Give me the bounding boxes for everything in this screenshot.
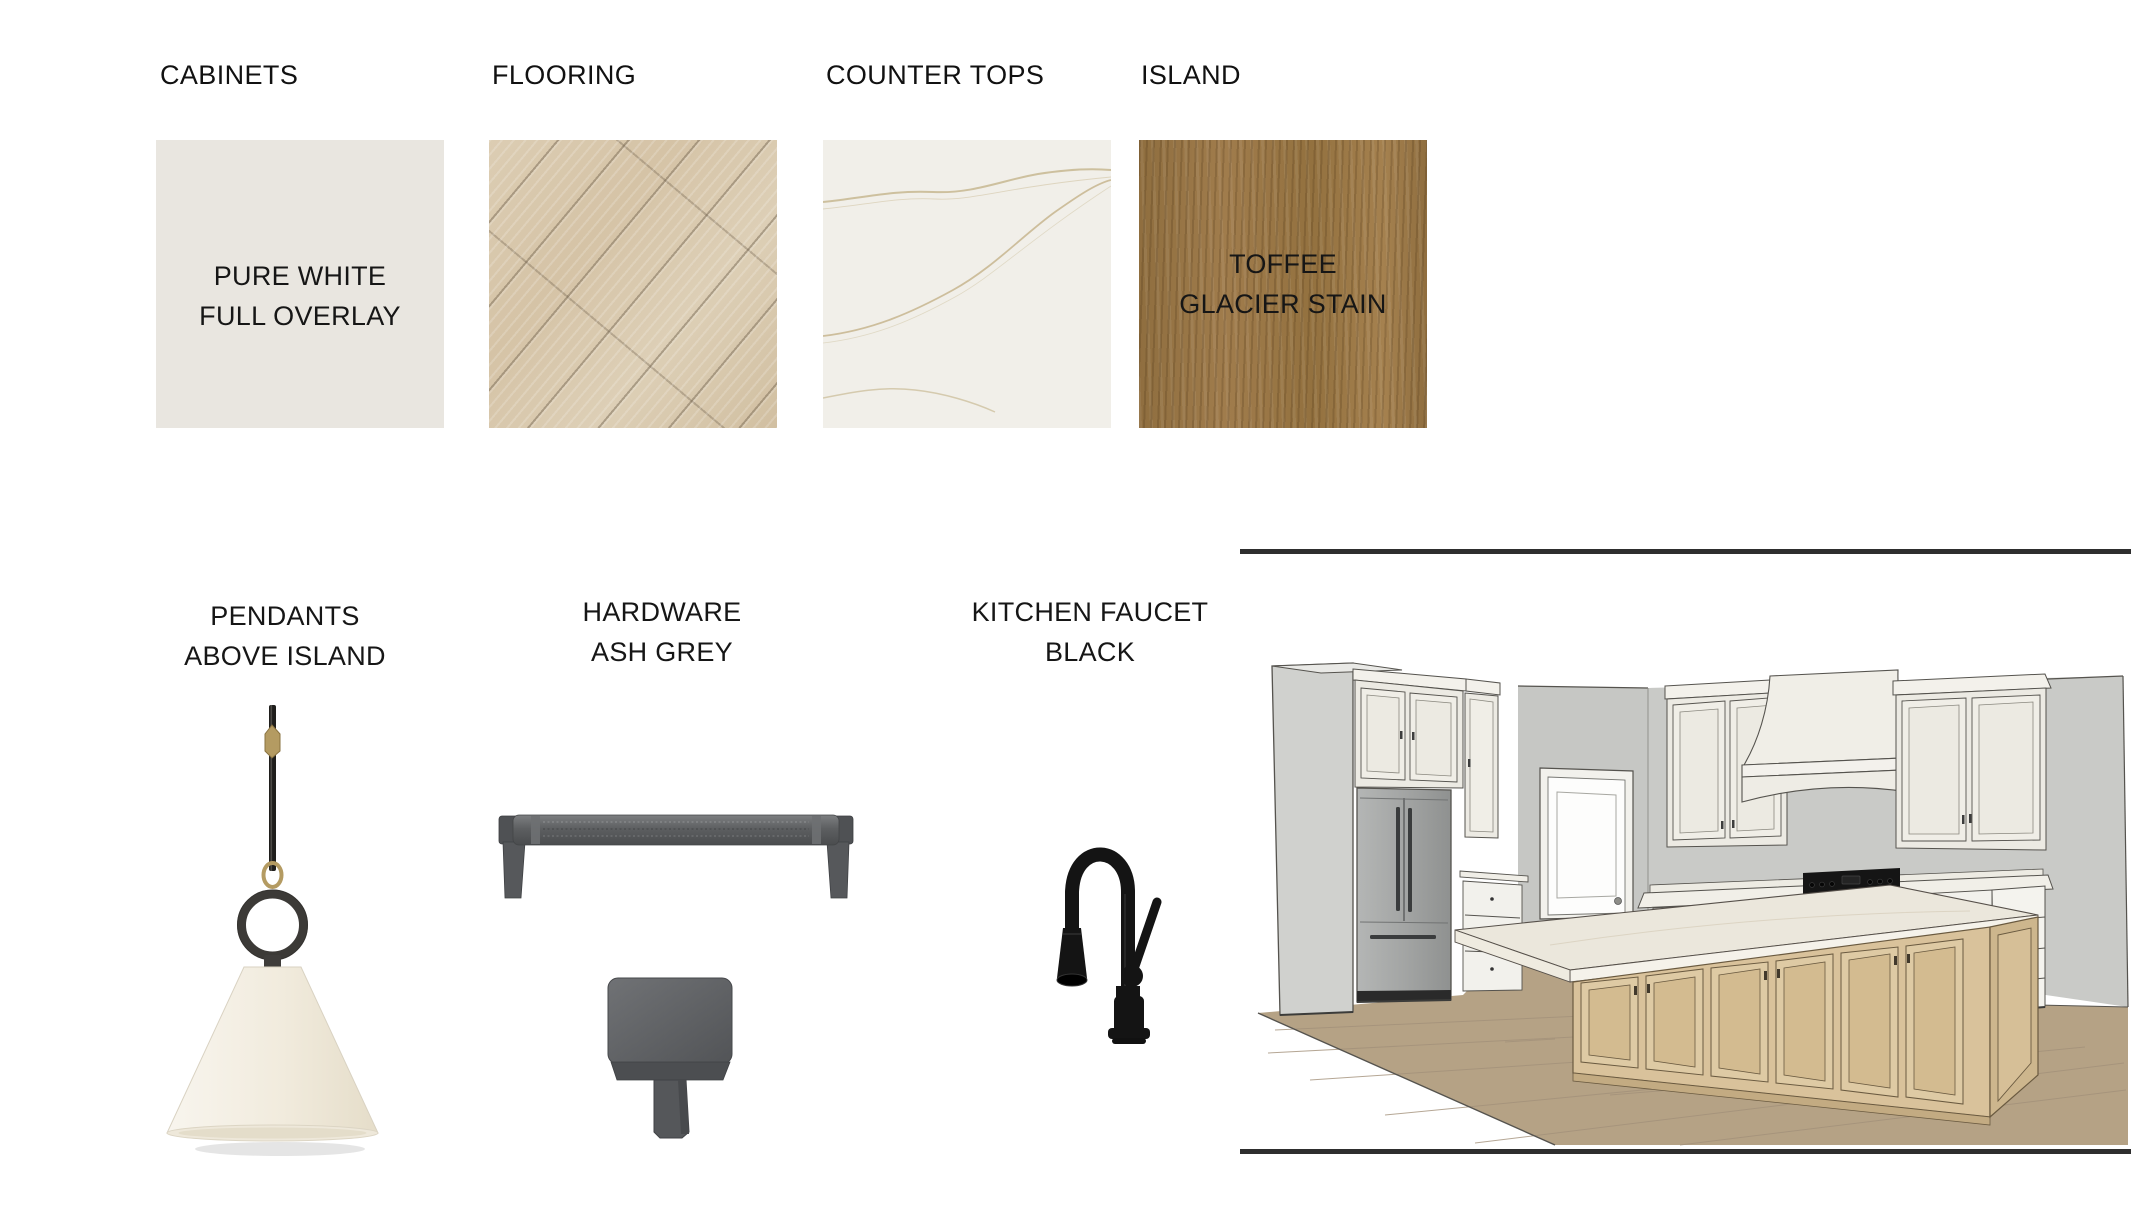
upper-cabinets-right <box>1893 674 2051 850</box>
kitchen-rendering <box>1250 555 2140 1147</box>
countertops-label: COUNTER TOPS <box>826 60 1044 91</box>
cabinets-swatch: PURE WHITE FULL OVERLAY <box>156 140 444 428</box>
faucet-base <box>1108 986 1150 1044</box>
pendants-caption: PENDANTSABOVE ISLAND <box>135 596 435 676</box>
mood-board: CABINETS FLOORING COUNTER TOPS ISLAND PU… <box>0 0 2154 1230</box>
pantry-door <box>1540 768 1633 919</box>
island-caption: TOFFEE GLACIER STAIN <box>1179 244 1386 324</box>
flooring-label: FLOORING <box>492 60 636 91</box>
fridge <box>1357 788 1451 1002</box>
cabinets-label: CABINETS <box>160 60 298 91</box>
faucet-image <box>1030 780 1190 1052</box>
pendant-light-image <box>160 703 390 1165</box>
bottom-divider-line <box>1240 1149 2131 1154</box>
hardware-caption: HARDWAREASH GREY <box>512 592 812 672</box>
flooring-swatch <box>489 140 777 428</box>
hardware-knob-image <box>602 974 738 1142</box>
hardware-pull-image <box>487 812 865 900</box>
pendant-shade <box>167 967 378 1141</box>
island-swatch: TOFFEE GLACIER STAIN <box>1139 140 1427 428</box>
faucet-caption: KITCHEN FAUCETBLACK <box>915 592 1265 672</box>
island-label: ISLAND <box>1141 60 1241 91</box>
countertops-swatch <box>823 140 1111 428</box>
pendant-shadow <box>195 1142 365 1156</box>
top-divider-line <box>1240 549 2131 554</box>
cabinets-caption: PURE WHITE FULL OVERLAY <box>199 256 401 336</box>
pull-knurled-bar <box>513 815 839 845</box>
knob-stem <box>654 1080 689 1138</box>
pendant-ring <box>238 890 308 960</box>
quartz-veining <box>823 140 1111 428</box>
knob-square-top <box>608 978 732 1080</box>
